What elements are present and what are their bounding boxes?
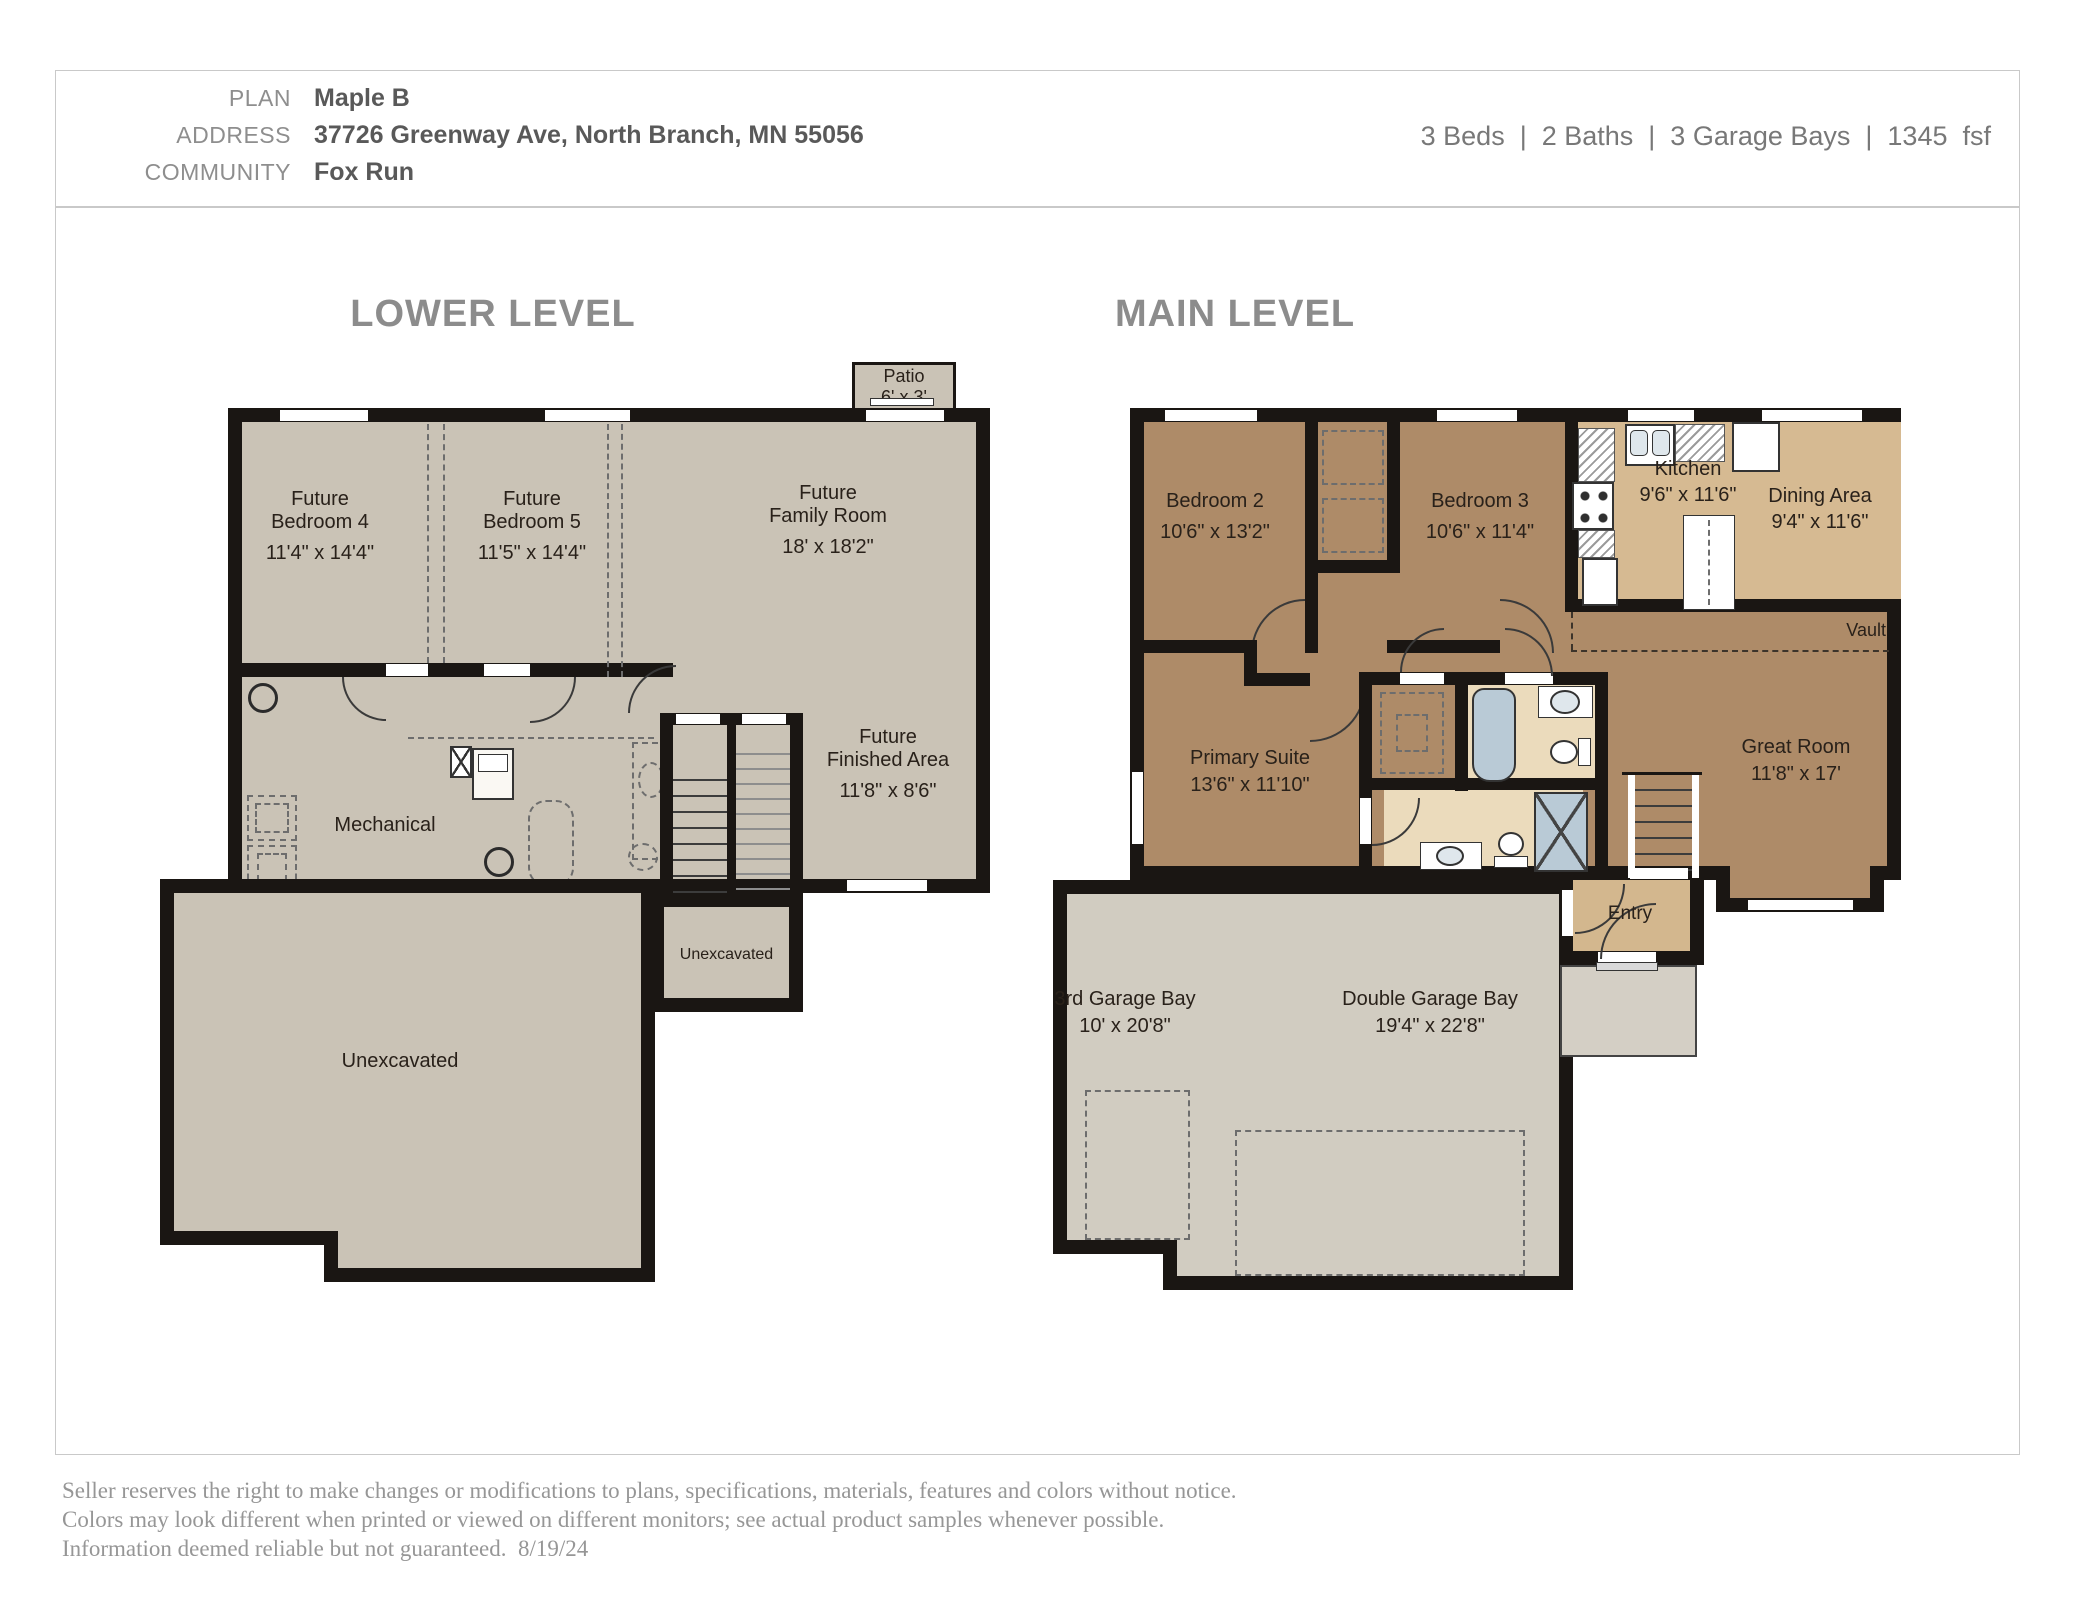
unexcavated-join-patch [338,1222,641,1245]
garage-notch-patch [1053,1254,1163,1304]
wall [1455,672,1468,791]
bedroom3-name: Bedroom 3 [1380,490,1580,513]
sink [1436,846,1464,866]
header-card: PLAN ADDRESS COMMUNITY Maple B 37726 Gre… [55,70,2020,207]
stair-rail [727,725,736,893]
disclaimer-line-3: Information deemed reliable but not guar… [62,1536,1462,1562]
wall [1359,672,1372,880]
wall [1163,1240,1177,1276]
window [1165,410,1257,421]
window [1762,410,1862,421]
closet-dashed [1322,430,1384,485]
bedroom4-prefix: Future [210,488,430,511]
plan-label: PLAN [76,80,291,117]
sink [1550,690,1580,714]
primary-suite-name: Primary Suite [1140,747,1360,770]
door-opening [742,714,786,724]
dishwasher [1582,558,1618,606]
garage-double-dims: 19'4" x 22'8" [1305,1015,1555,1038]
sink-bowl [1630,430,1648,456]
great-room-dims: 11'8" x 17' [1696,763,1896,786]
stairs-down [1635,775,1692,878]
window [1628,410,1694,421]
patio-step [870,398,934,406]
bedroom4-label: Future Bedroom 4 11'4" x 14'4" [210,488,430,565]
bedroom2-label: Bedroom 2 10'6" x 13'2" [1115,490,1315,544]
sink-bowl [1652,430,1670,456]
door-opening [1400,673,1444,684]
wall [1244,673,1310,686]
community-label: COMMUNITY [76,154,291,191]
finished-area-label: Future Finished Area 11'8" x 8'6" [788,726,988,803]
garage-third-name: 3rd Garage Bay [1025,988,1225,1011]
future-hall-dashed [408,737,654,739]
mech-equipment-dashed [257,853,287,881]
plan-value: Maple B [314,80,410,117]
bedroom5-prefix: Future [422,488,642,511]
wall [1595,672,1608,880]
stair-opening [1630,868,1688,879]
main-level-title: MAIN LEVEL [985,293,1485,336]
dining-dims: 9'4" x 11'6" [1720,511,1920,534]
vault-line [1571,612,1573,650]
great-room-name: Great Room [1696,736,1896,759]
family-room-label: Future Family Room 18' x 18'2" [718,482,938,559]
bedroom2-dims: 10'6" x 13'2" [1115,521,1315,544]
window [1437,410,1517,421]
unexcavated-small-label: Unexcavated [651,946,802,964]
bedroom5-name: Bedroom 5 [422,511,642,534]
great-room-label: Great Room 11'8" x 17' [1696,736,1896,786]
furnace-panel [478,754,508,772]
stair-rail [1692,775,1699,878]
porch [1560,965,1697,1057]
support-post [484,847,514,877]
garage-door-dashed [1235,1130,1525,1276]
finished-area-dims: 11'8" x 8'6" [788,780,988,803]
bedroom3-label: Bedroom 3 10'6" x 11'4" [1380,490,1580,544]
stair-wall [660,713,673,893]
door-opening [386,664,428,676]
garage-double-label: Double Garage Bay 19'4" x 22'8" [1305,988,1555,1038]
mechanical-label: Mechanical [285,814,485,837]
garage-double-name: Double Garage Bay [1305,988,1555,1011]
window [280,410,368,421]
island-dashed [1708,520,1710,605]
bedroom5-dims: 11'5" x 14'4" [422,542,642,565]
disclaimer-line-1: Seller reserves the right to make change… [62,1478,1462,1504]
garage-third-dims: 10' x 20'8" [1025,1015,1225,1038]
bedroom4-dims: 11'4" x 14'4" [210,542,430,565]
window [545,410,630,421]
wall [1305,560,1400,573]
family-room-name: Family Room [718,505,938,528]
kitchen-name: Kitchen [1588,458,1788,481]
bedroom5-label: Future Bedroom 5 11'5" x 14'4" [422,488,642,565]
dining-name: Dining Area [1720,485,1920,508]
future-toilet-dashed [628,843,658,871]
bedroom3-dims: 10'6" x 11'4" [1380,521,1580,544]
wall [1144,640,1250,653]
home-stats: 3 Beds | 2 Baths | 3 Garage Bays | 1345 … [1421,121,1991,152]
wic-shelves-dashed [1396,714,1428,752]
bathtub [1472,688,1516,782]
closet-dashed [1322,498,1384,553]
lower-level-title: LOWER LEVEL [243,293,743,336]
stairs-under [736,740,790,893]
bedroom4-name: Bedroom 4 [210,511,430,534]
primary-suite-dims: 13'6" x 11'10" [1140,774,1360,797]
vault-line [1571,650,1889,652]
dining-label: Dining Area 9'4" x 11'6" [1720,485,1920,534]
patio-door [866,410,944,421]
stair-rail [1628,775,1635,878]
mech-equipment-dashed [255,803,289,833]
stairs-down [673,765,727,893]
water-softener [450,746,472,778]
address-label: ADDRESS [76,117,291,154]
patio-name: Patio [850,366,958,387]
future-tub-dashed [528,800,574,886]
toilet-tank [1494,856,1528,868]
disclaimer-line-2: Colors may look different when printed o… [62,1507,1462,1533]
family-room-dims: 18' x 18'2" [718,536,938,559]
counter-hatch [1675,424,1725,462]
primary-suite-label: Primary Suite 13'6" x 11'10" [1140,747,1360,797]
wall [1053,1240,1177,1254]
toilet-tank [1578,738,1591,766]
window [1748,900,1853,910]
floor-plan-sheet: PLAN ADDRESS COMMUNITY Maple B 37726 Gre… [0,0,2080,1607]
entry-label: Entry [1570,903,1690,925]
counter-hatch [1578,530,1615,558]
shower [1534,792,1588,872]
door-opening [484,664,530,676]
toilet [1550,740,1578,764]
finished-area-name: Finished Area [788,749,988,772]
finished-area-prefix: Future [788,726,988,749]
community-value: Fox Run [314,154,414,191]
address-value: 37726 Greenway Ave, North Branch, MN 550… [314,117,864,154]
toilet [1498,832,1524,856]
garage-door-dashed [1085,1090,1190,1240]
window [847,880,927,891]
garage-third-label: 3rd Garage Bay 10' x 20'8" [1025,988,1225,1038]
vault-label: Vault [1786,620,1886,641]
unexcavated-large-label: Unexcavated [300,1050,500,1073]
family-room-prefix: Future [718,482,938,505]
door-opening [1360,798,1371,844]
bedroom2-name: Bedroom 2 [1115,490,1315,513]
bump-join-patch [1730,866,1870,894]
door-opening [676,714,720,724]
threshold [1596,962,1658,971]
support-post [248,683,278,713]
